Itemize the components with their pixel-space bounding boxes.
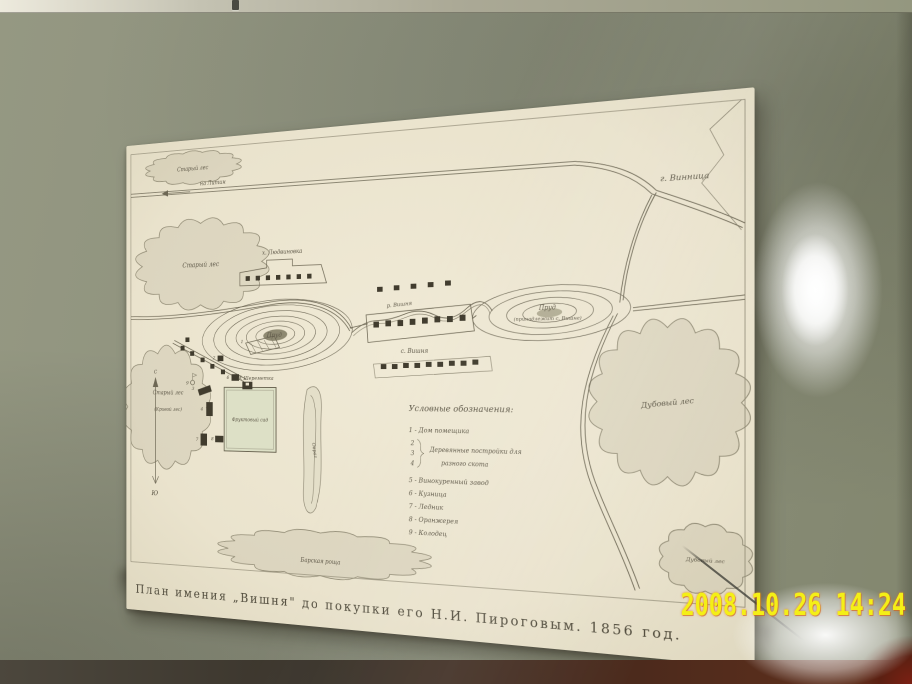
orchard [224,382,276,453]
bnum-3: 3 [192,386,195,392]
camera-timestamp: 2008.10.26 14:24 [681,588,906,623]
legend-num-2: 2 [410,441,415,448]
label-river: р. Вишня [387,301,413,310]
legend-item-5: 5 - Винокуренный завод [409,477,489,488]
legend-num-3: 3 [411,451,415,458]
grove-barskaya [218,525,432,587]
label-pond-right-sub: (принадлежит с. Вишне) [514,316,582,323]
label-old-forest-left: Старый лес [182,260,219,270]
nail [232,0,239,10]
river-vishnya [352,301,493,335]
label-litin: на Литин [200,179,226,187]
legend-item-1: 1 - Дом помещика [409,427,470,436]
map-paper: С Ю Старый лес на Литин г. Винница Стары… [126,87,754,668]
legend-title: Условные обозначения: [409,403,514,414]
label-village: с. Вишня [401,348,429,355]
label-vinnitsa: г. Винница [660,171,709,184]
bnum-6: 6 [227,375,230,381]
legend-item-8: 8 - Оранжерея [409,516,459,526]
village-buildings [366,279,492,378]
legend-num-4: 4 [410,461,415,468]
bnum-9: 9 [186,380,189,386]
bnum-7: 7 [196,437,199,443]
legend-group-line2: разного скота [441,461,489,469]
label-ludvinovka: х. Людвиновка [262,249,302,257]
bnum-8: 8 [211,436,214,442]
legend-item-9: 9 - Колодец [409,529,447,539]
label-orchard: Фруктовый сад [232,417,268,424]
legend-group-line1: Деревянные постройки для [429,447,522,456]
road-arrow [162,190,168,197]
legend: Условные обозначения: 1 - Дом помещика 2… [409,403,522,543]
bnum-1: 1 [241,339,244,345]
label-pond-left: Пруд [266,332,282,340]
glass-reflection-core [770,215,860,365]
legend-brace [417,439,424,467]
bnum-5: 5 [239,375,242,381]
label-pond-right: Пруд [538,305,557,312]
label-old-forest-lower: Старый лес [153,390,184,396]
legend-item-6: 6 - Кузница [409,490,447,499]
photo-of-framed-map: С Ю Старый лес на Литин г. Винница Стары… [0,0,912,684]
bnum-4: 4 [200,406,204,412]
bnum-2: 2 [212,355,216,361]
compass-north: С [154,369,157,375]
compass-south: Ю [151,489,159,497]
map-drawing: С Ю Старый лес на Литин г. Винница Стары… [126,87,754,668]
legend-item-7: 7 - Ледник [409,503,444,512]
wall-top-strip [0,0,912,13]
label-sheremetka: с. Шереметка [238,376,274,382]
